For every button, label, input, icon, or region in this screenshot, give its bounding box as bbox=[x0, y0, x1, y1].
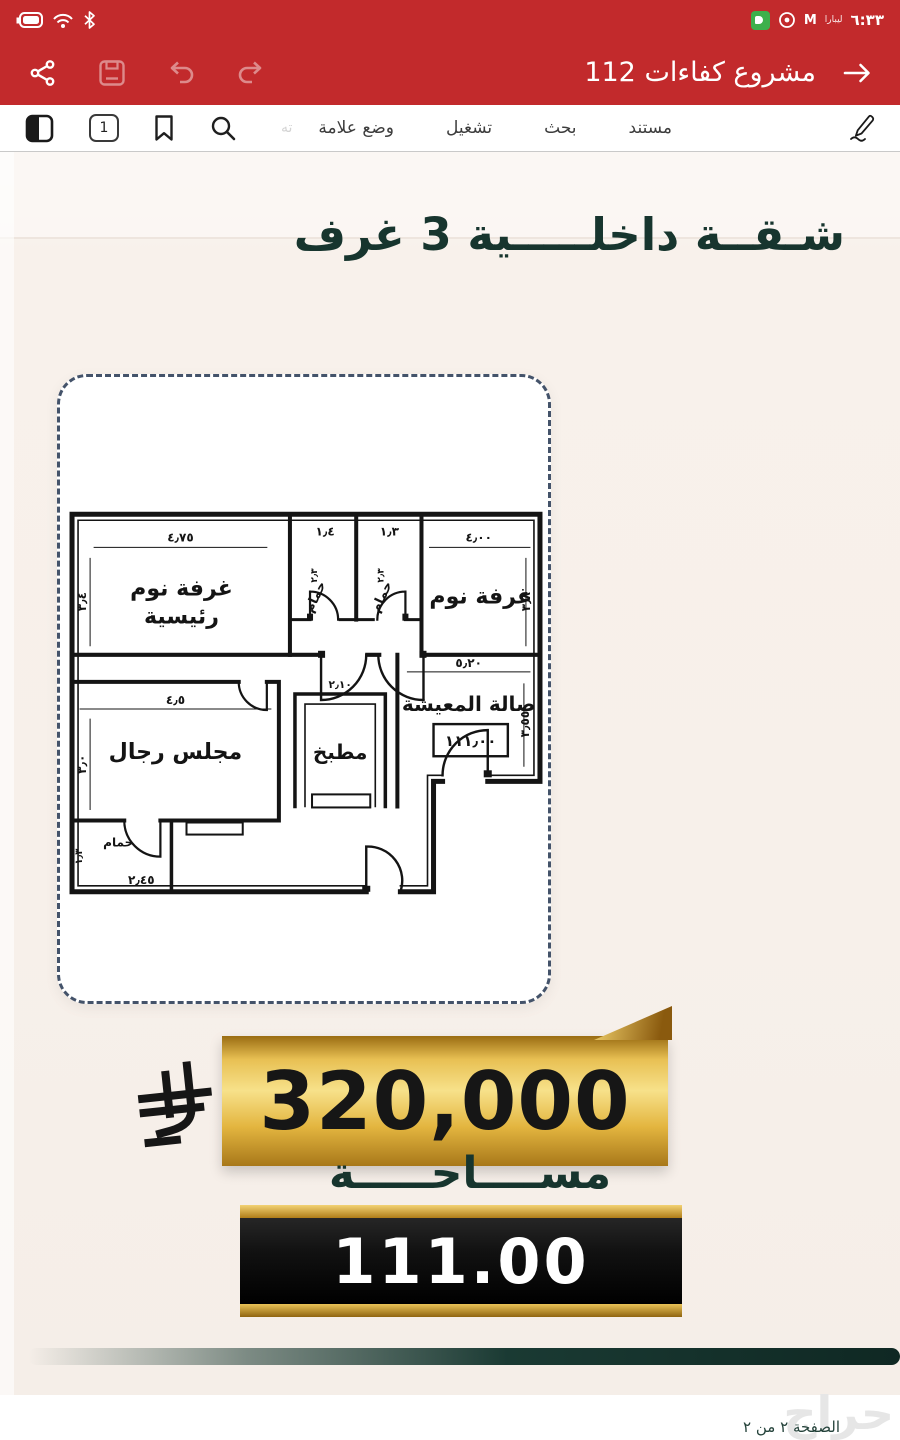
riyal-symbol-icon bbox=[136, 1058, 216, 1154]
dim-small-bath-width: ٢٫٤٥ bbox=[128, 873, 155, 887]
status-bar: M ليبارا ٦:٣٣ bbox=[0, 0, 900, 40]
room-label-master-2: رئيسية bbox=[144, 604, 219, 630]
decorative-gradient-bar bbox=[28, 1348, 900, 1365]
annotate-pen-button[interactable] bbox=[846, 113, 876, 143]
dim-bath2-height: ٢٫٣ bbox=[376, 568, 386, 583]
viewer-footer: حراج الصفحة ٢ من ٢ bbox=[0, 1395, 900, 1440]
gmail-icon: M bbox=[804, 14, 817, 27]
dim-bedroom-width: ٤٫٠٠ bbox=[465, 530, 492, 544]
status-time: ٦:٣٣ bbox=[851, 11, 884, 29]
price-ribbon: 320,000 bbox=[222, 1036, 668, 1166]
dim-bath2-width: ١٫٣ bbox=[380, 524, 400, 538]
app-toolbar: مشروع كفاءات 112 bbox=[0, 40, 900, 105]
viewer-tab-bar: 1 ته وضع علامة تشغيل بحث مستند bbox=[0, 105, 900, 152]
page-indicator: الصفحة ٢ من ٢ bbox=[743, 1418, 840, 1436]
thumbnail-panel-button[interactable] bbox=[24, 113, 55, 144]
room-label-kitchen: مطبخ bbox=[313, 740, 368, 764]
tab-search[interactable]: بحث bbox=[544, 118, 576, 138]
document-title: مشروع كفاءات 112 bbox=[584, 57, 816, 88]
room-label-small-bath: حمام bbox=[103, 836, 133, 851]
tab-clipped[interactable]: ته bbox=[281, 120, 292, 136]
flyer-title: شـقــة داخلـــــية 3 غرف bbox=[294, 208, 845, 261]
battery-icon bbox=[16, 11, 43, 29]
price-value: 320,000 bbox=[259, 1055, 630, 1148]
ribbon-gold-edge-bottom bbox=[240, 1304, 682, 1317]
dim-living-height: ٣٫٥٥ bbox=[518, 711, 532, 738]
camera-app-icon bbox=[778, 11, 796, 29]
dim-small-bath-height: ١٫٣ bbox=[74, 849, 85, 865]
dim-majlis-height: ٣٫٠ bbox=[75, 755, 89, 774]
dim-bedroom-height: ٣٫٨ bbox=[519, 591, 533, 611]
dim-bath1-height: ٢٫٣ bbox=[310, 568, 320, 583]
room-label-bedroom: غرفة نوم bbox=[429, 584, 532, 610]
dim-master-width: ٤٫٧٥ bbox=[167, 530, 194, 544]
bookmark-button[interactable] bbox=[153, 114, 175, 142]
undo-button[interactable] bbox=[166, 60, 196, 86]
room-label-living: صالة المعيشة bbox=[402, 692, 536, 716]
search-button[interactable] bbox=[209, 114, 237, 142]
room-label-master-1: غرفة نوم bbox=[130, 576, 233, 602]
room-label-bath2: حمام bbox=[368, 579, 395, 615]
tab-mark-mode[interactable]: وضع علامة bbox=[318, 118, 394, 138]
tab-document[interactable]: مستند bbox=[629, 118, 672, 138]
area-ribbon: 111.00 bbox=[240, 1205, 682, 1317]
redo-button[interactable] bbox=[236, 60, 266, 86]
dim-master-height: ٣٫٤ bbox=[75, 592, 89, 611]
dim-bath1-width: ١٫٤ bbox=[315, 524, 334, 538]
room-label-majlis: مجلس رجال bbox=[109, 739, 243, 765]
area-box-value: ١١١٫٠٠ bbox=[445, 732, 497, 750]
share-button[interactable] bbox=[28, 58, 58, 88]
carrier-text: ليبارا bbox=[825, 15, 843, 25]
floor-plan-card: غرفة نوم رئيسية حمام حمام غرفة نوم مجلس … bbox=[57, 374, 551, 1004]
save-button[interactable] bbox=[98, 59, 126, 87]
floor-plan-drawing: غرفة نوم رئيسية حمام حمام غرفة نوم مجلس … bbox=[66, 503, 546, 897]
bluetooth-icon bbox=[83, 11, 96, 29]
messenger-app-icon bbox=[751, 11, 770, 30]
back-arrow-button[interactable] bbox=[842, 62, 872, 84]
dim-living-width: ٥٫٢٠ bbox=[455, 656, 482, 670]
page-number-button[interactable]: 1 bbox=[89, 114, 119, 142]
ribbon-fold bbox=[594, 1006, 672, 1040]
dim-majlis-width: ٤٫٥ bbox=[166, 693, 185, 707]
dim-kitchen-width: ٢٫١٠ bbox=[329, 679, 352, 691]
area-value: 111.00 bbox=[332, 1225, 589, 1298]
wifi-icon bbox=[52, 12, 74, 29]
ribbon-gold-edge-top bbox=[240, 1205, 682, 1218]
tab-play[interactable]: تشغيل bbox=[446, 118, 492, 138]
area-label: مســــاحـــــة bbox=[290, 1148, 650, 1199]
document-canvas[interactable]: شـقــة داخلـــــية 3 غرف bbox=[0, 152, 900, 1395]
